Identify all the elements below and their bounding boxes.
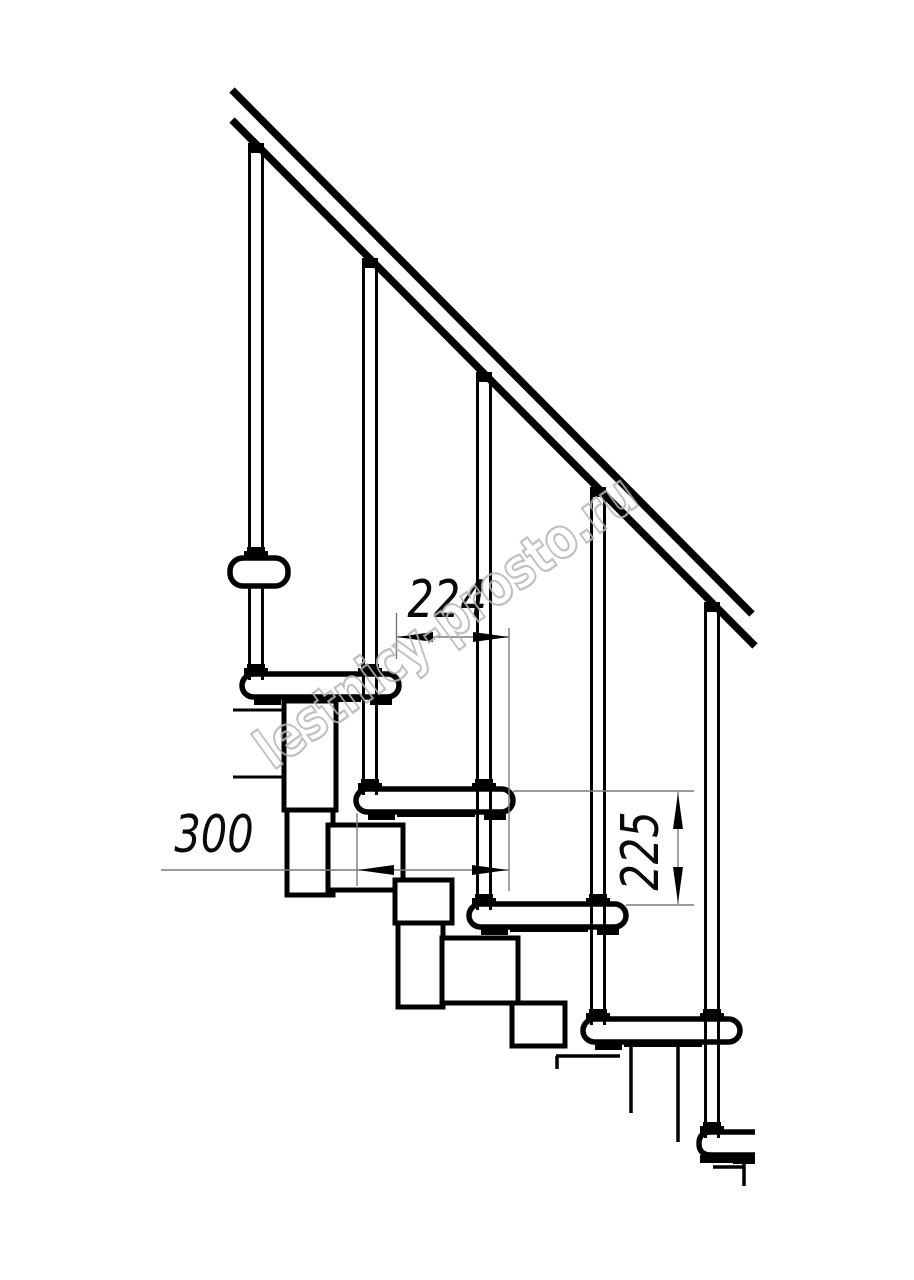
- baluster-flange: [361, 779, 379, 783]
- baluster-flange: [247, 664, 265, 668]
- baluster-5: [700, 602, 724, 1138]
- dimension-label-225: 225: [611, 811, 672, 890]
- baluster-flange: [586, 1013, 610, 1020]
- watermark-text: lestnicy-prosto.ru: [243, 462, 649, 782]
- module-box: [512, 1003, 565, 1046]
- baluster-flange: [475, 779, 493, 783]
- module-box: [398, 923, 443, 1007]
- module-box: [442, 938, 518, 1003]
- tread-3: [469, 904, 626, 935]
- module-box: [395, 880, 452, 923]
- baluster-flange: [472, 783, 496, 790]
- baluster-flange: [475, 894, 493, 898]
- baluster-flange: [703, 1122, 721, 1126]
- module-box: [328, 825, 403, 890]
- baluster-4: [586, 487, 610, 1025]
- staircase-technical-drawing: 224 300 225 lestnicy-prosto.ru: [0, 0, 914, 1280]
- tread-plate: [469, 904, 626, 927]
- baluster-flange: [244, 668, 268, 675]
- arrowhead-down: [673, 867, 683, 903]
- baluster-flange: [703, 1009, 721, 1013]
- rail-end-bracket: [230, 547, 288, 586]
- tread-plate: [583, 1019, 740, 1042]
- baluster-flange: [589, 1009, 607, 1013]
- baluster-flange: [589, 894, 607, 898]
- tread-plate: [699, 1132, 755, 1155]
- baluster-flange: [472, 898, 496, 905]
- baluster-flange: [700, 1013, 724, 1020]
- bracket-plate: [230, 558, 288, 586]
- tread-4: [583, 1019, 740, 1050]
- tread-5: [699, 1132, 755, 1186]
- dimension-label-300: 300: [174, 805, 253, 866]
- baluster-flange: [358, 783, 382, 790]
- baluster-1: [244, 143, 268, 680]
- arrowhead-up: [673, 793, 683, 829]
- baluster-flange: [586, 898, 610, 905]
- baluster-flange: [700, 1126, 724, 1133]
